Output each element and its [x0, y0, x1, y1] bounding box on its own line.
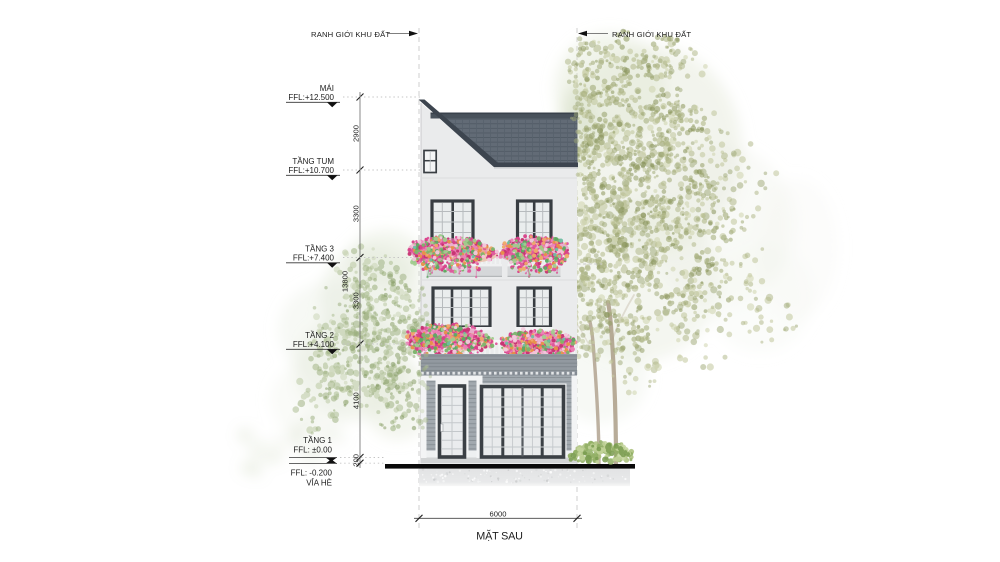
svg-text:TẦNG 3: TẦNG 3 [305, 244, 334, 254]
svg-text:TẦNG TUM: TẦNG TUM [292, 156, 334, 166]
svg-text:13800: 13800 [341, 271, 350, 292]
svg-text:200: 200 [352, 454, 361, 467]
svg-text:MÁI: MÁI [320, 84, 334, 93]
svg-text:VỈA HÈ: VỈA HÈ [306, 479, 332, 488]
svg-text:FFL:+7.400: FFL:+7.400 [293, 254, 335, 263]
svg-text:TẦNG 2: TẦNG 2 [305, 330, 334, 340]
svg-text:FFL:+12.500: FFL:+12.500 [288, 93, 334, 102]
svg-text:MẶT SAU: MẶT SAU [476, 530, 522, 543]
svg-text:2900: 2900 [352, 125, 361, 142]
svg-text:4100: 4100 [352, 392, 361, 409]
svg-text:3300: 3300 [352, 292, 361, 309]
svg-text:FFL:+10.700: FFL:+10.700 [288, 166, 334, 175]
svg-text:3300: 3300 [352, 205, 361, 222]
svg-text:6000: 6000 [490, 509, 507, 518]
svg-text:RANH GIỚI KHU ĐẤT: RANH GIỚI KHU ĐẤT [311, 29, 390, 39]
svg-text:RANH GIỚI KHU ĐẤT: RANH GIỚI KHU ĐẤT [612, 29, 691, 39]
svg-text:FFL: -0.200: FFL: -0.200 [291, 469, 333, 478]
svg-text:TẦNG 1: TẦNG 1 [303, 435, 332, 445]
svg-text:FFL:+4.100: FFL:+4.100 [293, 340, 335, 349]
svg-text:FFL: ±0.00: FFL: ±0.00 [293, 446, 332, 455]
